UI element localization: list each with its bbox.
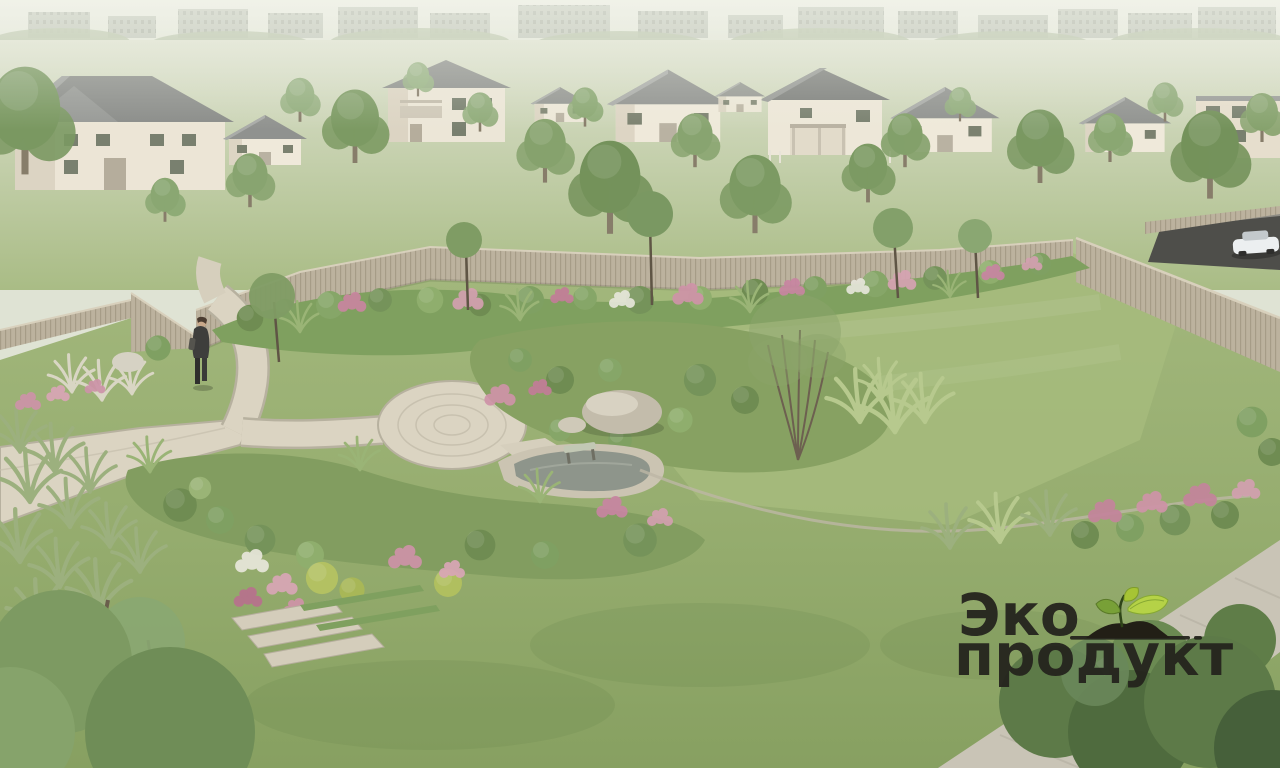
eco-product-watermark: Эко продукт <box>950 582 1225 712</box>
watermark-text-line2: продукт <box>954 626 1233 684</box>
landscape-render: Эко продукт <box>0 0 1280 768</box>
haze-overlay <box>0 0 1280 130</box>
